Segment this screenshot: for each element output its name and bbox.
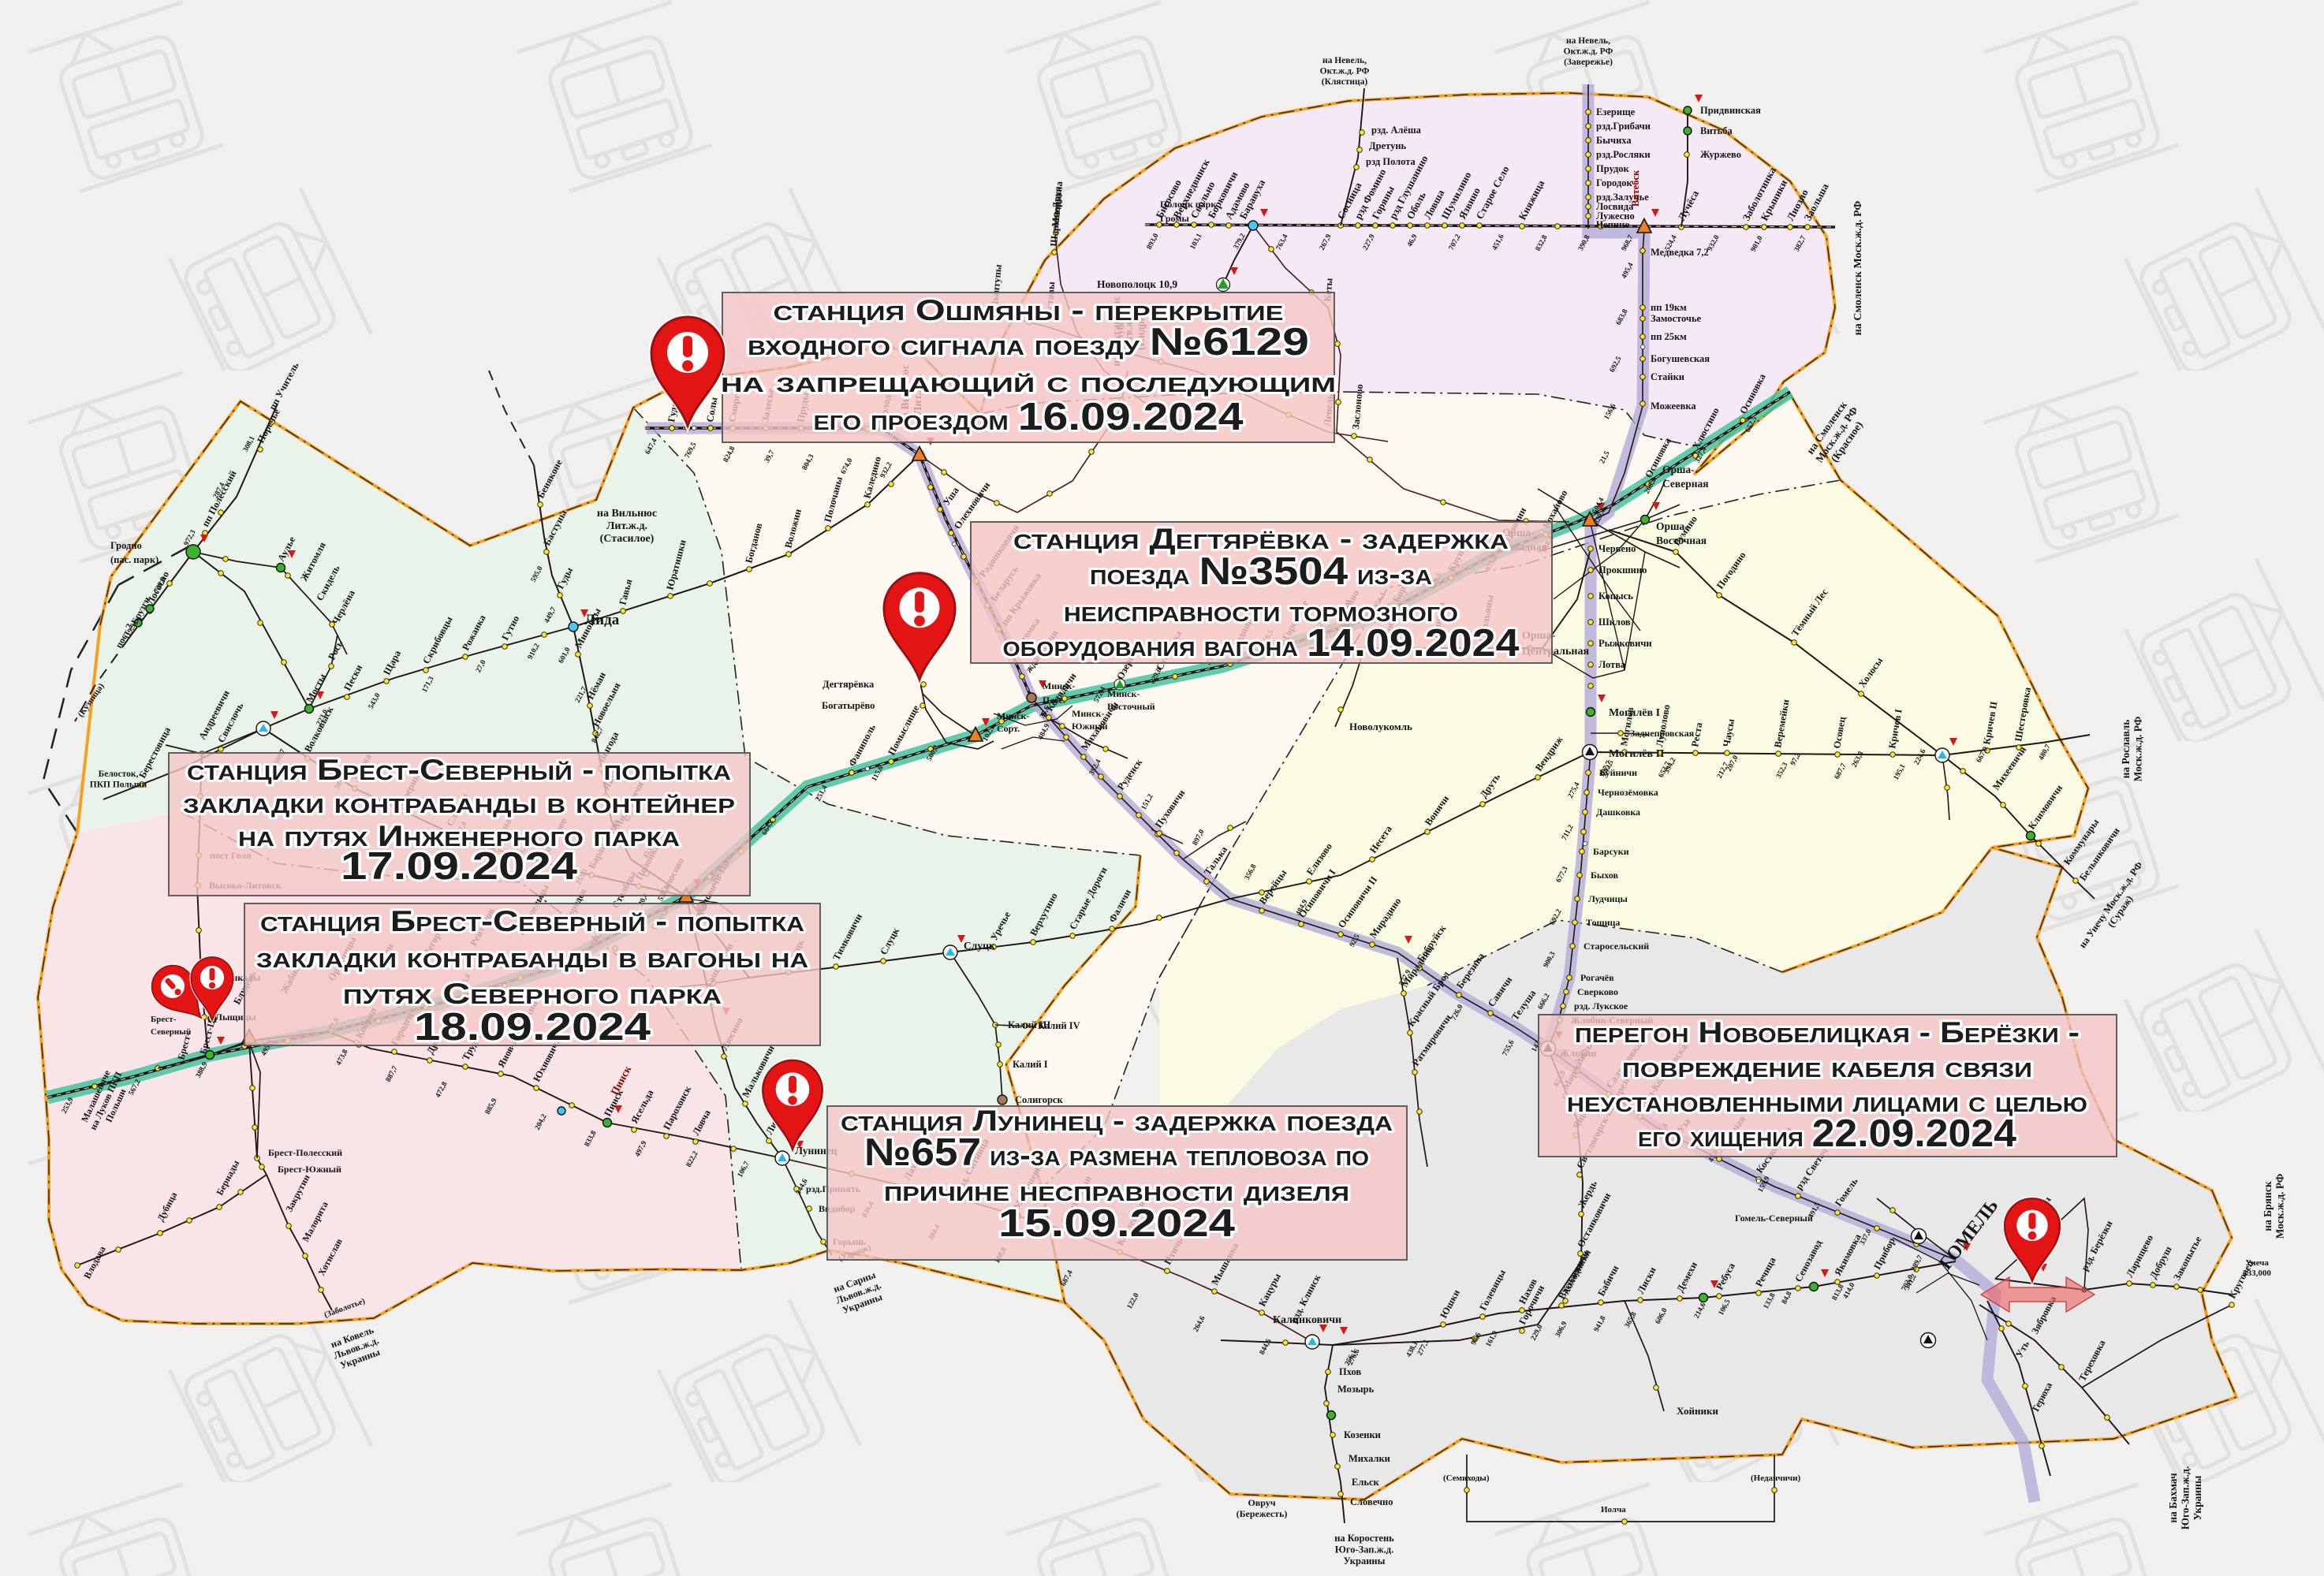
svg-text:на Невель,: на Невель, — [1322, 56, 1367, 65]
svg-text:Барсуки: Барсуки — [1593, 846, 1629, 857]
svg-text:Минск-: Минск- — [1107, 688, 1140, 699]
svg-text:Восточная: Восточная — [1656, 535, 1707, 546]
svg-text:повреждение кабеля связи: повреждение кабеля связи — [1622, 1051, 2032, 1083]
svg-text:Придвинская: Придвинская — [1700, 105, 1761, 116]
svg-text:Калий I: Калий I — [1013, 1059, 1048, 1070]
svg-text:Копысь: Копысь — [1598, 591, 1633, 602]
svg-text:Солигорск: Солигорск — [1015, 1094, 1063, 1105]
svg-text:Гомель-Северный: Гомель-Северный — [1735, 1213, 1813, 1224]
svg-text:Чернозёмовка: Чернозёмовка — [1598, 787, 1658, 798]
svg-text:Орша-: Орша- — [1662, 464, 1695, 475]
svg-text:Журжево: Журжево — [1700, 149, 1741, 160]
svg-text:Витебск: Витебск — [1630, 170, 1641, 207]
svg-text:Медведка 7,2: Медведка 7,2 — [1651, 247, 1709, 258]
svg-text:Окт.ж.д. РФ: Окт.ж.д. РФ — [1320, 67, 1370, 76]
svg-text:рзд. Алёша: рзд. Алёша — [1371, 125, 1422, 136]
svg-text:закладки контрабанды в вагоны: закладки контрабанды в вагоны на — [256, 941, 808, 974]
svg-text:Овруч: Овруч — [1248, 1497, 1275, 1508]
svg-text:Богушевская: Богушевская — [1651, 353, 1710, 364]
svg-text:(пас. парк): (пас. парк) — [110, 554, 159, 565]
svg-text:Слуцк: Слуцк — [964, 940, 995, 952]
svg-text:Михалки: Михалки — [1349, 1453, 1390, 1464]
svg-text:Дашковка: Дашковка — [1596, 807, 1640, 818]
svg-text:пп 25км: пп 25км — [1651, 331, 1687, 342]
svg-text:Моск.ж.д. РФ: Моск.ж.д. РФ — [2274, 1173, 2286, 1239]
svg-text:станция Брест-Северный - попыт: станция Брест-Северный - попытка — [260, 905, 804, 937]
svg-text:Минск-: Минск- — [997, 710, 1029, 721]
svg-text:Моск.ж.д. РФ: Моск.ж.д. РФ — [2132, 716, 2144, 781]
svg-text:Езерище: Езерище — [1596, 106, 1636, 117]
svg-text:станция Брест-Северный - попыт: станция Брест-Северный - попытка — [187, 754, 731, 786]
svg-text:Лида: Лида — [584, 612, 620, 628]
svg-text:Новополоцк 10,9: Новополоцк 10,9 — [1097, 278, 1177, 290]
svg-text:Стайки: Стайки — [1651, 371, 1684, 382]
svg-text:Иолча: Иолча — [1601, 1505, 1626, 1515]
svg-text:на Невель,: на Невель, — [1566, 36, 1610, 46]
svg-text:Белосток,: Белосток, — [99, 769, 139, 779]
svg-text:закладки контрабанды в контейн: закладки контрабанды в контейнер — [183, 787, 735, 819]
svg-text:17.09.2024: 17.09.2024 — [341, 845, 577, 888]
svg-text:Калий IV: Калий IV — [1038, 1020, 1080, 1031]
svg-text:рзд Полота: рзд Полота — [1366, 156, 1416, 167]
svg-text:на Коростень: на Коростень — [1334, 1533, 1394, 1544]
svg-text:ПКП Польши: ПКП Польши — [90, 781, 147, 790]
svg-text:Рыжковичи: Рыжковичи — [1598, 638, 1652, 649]
svg-text:Сорт.: Сорт. — [997, 723, 1020, 734]
svg-text:Брест-: Брест- — [151, 1015, 177, 1024]
svg-text:Северный: Северный — [151, 1027, 192, 1037]
svg-text:Орша-: Орша- — [1656, 520, 1688, 532]
svg-text:Юго-Зап.ж.д.: Юго-Зап.ж.д. — [1335, 1544, 1394, 1556]
svg-text:Червено: Червено — [1598, 543, 1636, 554]
svg-text:Новолукомль: Новолукомль — [1349, 721, 1412, 732]
svg-text:на Бахмач: на Бахмач — [2167, 1473, 2179, 1523]
svg-text:Юго-Зап.ж.д.: Юго-Зап.ж.д. — [2180, 1466, 2192, 1529]
svg-text:пп 19км: пп 19км — [1651, 302, 1687, 313]
svg-text:рзд. Лукское: рзд. Лукское — [1574, 1000, 1628, 1012]
svg-text:Быхов: Быхов — [1591, 870, 1619, 881]
svg-text:Унеча: Унеча — [2245, 1258, 2269, 1268]
svg-text:Прокшино: Прокшино — [1598, 564, 1647, 576]
svg-text:рзд.Росляки: рзд.Росляки — [1596, 149, 1651, 160]
svg-text:Брест-Южный: Брест-Южный — [278, 1164, 341, 1175]
svg-text:Лудчицы: Лудчицы — [1588, 893, 1628, 904]
svg-text:Тощица: Тощица — [1586, 917, 1620, 928]
svg-text:Пхов: Пхов — [1339, 1366, 1361, 1377]
svg-text:Городок: Городок — [1596, 177, 1633, 188]
svg-text:на Смоленск Моск.ж.д. РФ: на Смоленск Моск.ж.д. РФ — [1852, 201, 1864, 336]
svg-text:Старосельский: Старосельский — [1584, 941, 1649, 952]
svg-text:(Клястица): (Клястица) — [1322, 77, 1368, 87]
svg-text:Брест-Полесский: Брест-Полесский — [268, 1147, 342, 1158]
svg-text:на Вильнюс: на Вильнюс — [597, 508, 657, 520]
svg-text:Украины: Украины — [1344, 1556, 1386, 1567]
svg-text:Бычиха: Бычиха — [1596, 135, 1632, 146]
svg-text:18.09.2024: 18.09.2024 — [414, 1006, 651, 1049]
svg-text:Словечно: Словечно — [1350, 1496, 1393, 1507]
svg-text:Дретунь: Дретунь — [1369, 140, 1407, 151]
svg-text:Громы: Громы — [1160, 213, 1189, 224]
svg-text:Украины: Украины — [2192, 1475, 2203, 1520]
svg-text:Шклов: Шклов — [1598, 617, 1631, 628]
svg-text:на Брянск: на Брянск — [2262, 1181, 2274, 1231]
svg-text:перегон Новобелицкая - Берёзки: перегон Новобелицкая - Берёзки - — [1575, 1016, 2080, 1049]
svg-text:Могилёв I: Могилёв I — [1609, 707, 1660, 719]
svg-text:15.09.2024: 15.09.2024 — [998, 1202, 1235, 1245]
svg-text:233,000: 233,000 — [2243, 1269, 2271, 1278]
svg-text:Замосточье: Замосточье — [1651, 313, 1702, 324]
svg-text:Витьба: Витьба — [1700, 125, 1733, 136]
svg-text:Полоцк парк: Полоцк парк — [1160, 199, 1216, 210]
svg-text:Мозырь: Мозырь — [1337, 1384, 1375, 1395]
svg-text:Прудок: Прудок — [1596, 163, 1630, 174]
svg-text:Чепино: Чепино — [1596, 219, 1630, 230]
svg-text:Лит.ж.д.: Лит.ж.д. — [606, 520, 647, 532]
svg-text:(Бережесть): (Бережесть) — [1237, 1508, 1288, 1519]
svg-text:Лотва: Лотва — [1598, 659, 1626, 670]
svg-text:на запрещающий с последующим: на запрещающий с последующим — [721, 366, 1336, 398]
svg-text:Ельск: Ельск — [1352, 1477, 1380, 1488]
svg-text:Дегтярёвка: Дегтярёвка — [823, 679, 875, 690]
svg-text:(Стасилое): (Стасилое) — [600, 533, 655, 545]
svg-text:(Завережье): (Завережье) — [1564, 58, 1613, 67]
svg-text:рзд.Грибачи: рзд.Грибачи — [1596, 121, 1651, 132]
svg-text:Гродно: Гродно — [110, 540, 142, 551]
svg-text:на Рославль: на Рославль — [2120, 720, 2132, 779]
svg-text:Рогачёв: Рогачёв — [1580, 972, 1614, 983]
svg-text:Сверково: Сверково — [1577, 986, 1618, 997]
svg-text:Могилёв II: Могилёв II — [1609, 748, 1664, 760]
svg-text:(Семиходы): (Семиходы) — [1443, 1474, 1490, 1483]
svg-text:Окт.ж.д. РФ: Окт.ж.д. РФ — [1564, 47, 1613, 57]
svg-text:Северная: Северная — [1662, 478, 1709, 490]
svg-text:(Неданчичи): (Неданчичи) — [1751, 1474, 1800, 1483]
svg-text:Козенки: Козенки — [1344, 1429, 1381, 1440]
svg-text:путях Северного парка: путях Северного парка — [343, 978, 722, 1010]
svg-text:Калинковичи: Калинковичи — [1273, 1314, 1341, 1326]
svg-text:Заднепровская: Заднепровская — [1630, 728, 1695, 739]
svg-text:Богатырёво: Богатырёво — [822, 700, 875, 711]
svg-text:Можеевка: Можеевка — [1651, 401, 1696, 412]
svg-text:Хойники: Хойники — [1677, 1405, 1718, 1417]
